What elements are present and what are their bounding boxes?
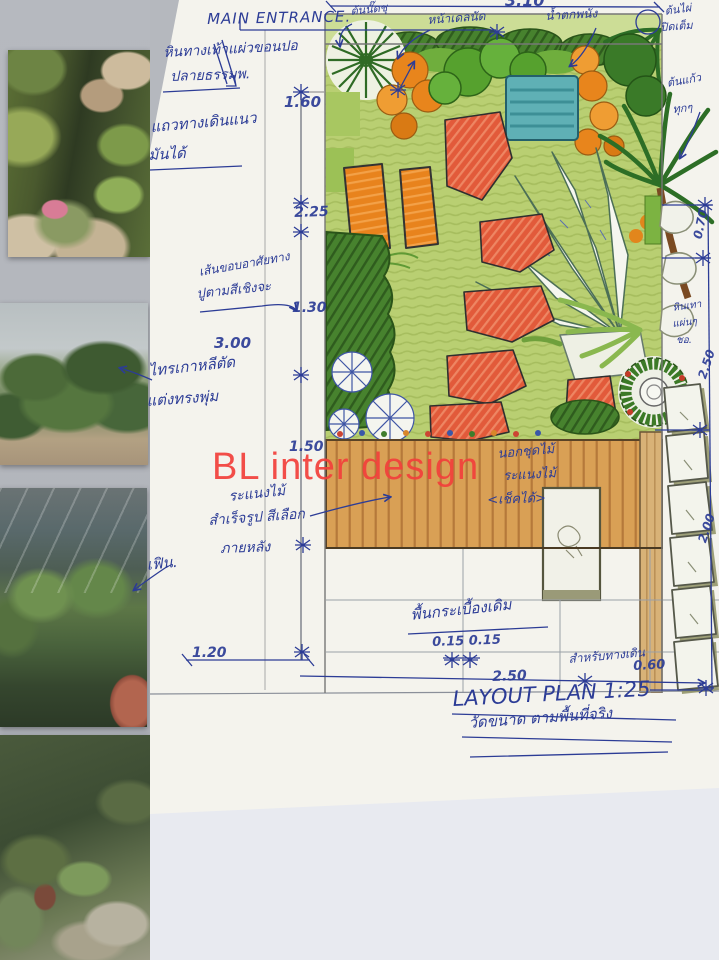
dim-3-00: 3.00: [214, 336, 251, 352]
note-deck-3: <เช็คได้>: [487, 492, 546, 508]
dim-0-60: 0.60: [633, 658, 666, 673]
photographed-landscape-plan: MAIN ENTRANCE. หินทางเท้าแผ่วขอนปอ ปลายธ…: [0, 0, 719, 960]
low-shrub: [551, 400, 619, 434]
note-fern: เฟิน.: [146, 555, 178, 574]
note-bamboo-2: ปิดเต็ม: [660, 20, 693, 34]
garden-plan: [325, 14, 716, 442]
note-kaew-2: ทุกๆ: [672, 102, 693, 116]
dim-1-60: 1.60: [284, 95, 321, 111]
grass-patch: [326, 92, 360, 136]
dim-1-30: 1.30: [292, 301, 327, 316]
shrub-strip: [645, 196, 661, 244]
dim-1-20: 1.20: [192, 646, 227, 661]
dim-2-50-bottom: 2.50: [492, 669, 527, 685]
dim-2-25: 2.25: [294, 205, 329, 221]
dim-3-10: 3.10: [505, 0, 544, 10]
note-walkway-2: ปลายธรรมพ.: [170, 67, 250, 84]
main-entrance-label: MAIN ENTRANCE.: [207, 9, 351, 27]
note-grey-3: ชอ.: [676, 336, 692, 347]
pond: [506, 76, 578, 140]
note-deck-2: ระแนงไม้: [503, 467, 556, 483]
second-sheet: [150, 788, 719, 960]
dim-0-15: 0.15 0.15: [432, 634, 501, 650]
note-row-2: มันได้: [148, 146, 186, 164]
note-waterfall: น้ำตกพนัง: [545, 7, 598, 22]
watermark: BL inter design: [212, 446, 479, 489]
deck-table: [543, 488, 600, 600]
note-lattice-3: ภายหลัง: [220, 540, 270, 556]
